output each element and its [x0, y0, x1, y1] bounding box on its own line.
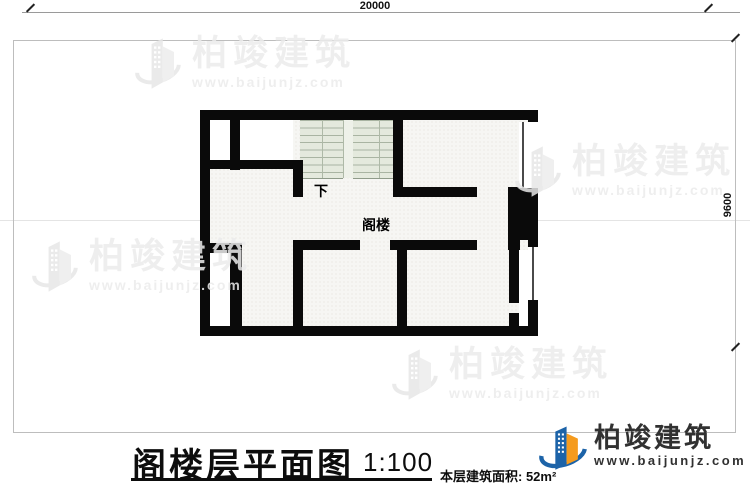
dimension-line-top — [22, 12, 740, 13]
floor-plan: 下阁楼 — [200, 110, 538, 336]
wall — [397, 240, 407, 336]
title-underline — [131, 478, 432, 481]
dimension-top-value: 20000 — [0, 0, 750, 12]
room-area — [240, 120, 293, 160]
wall — [508, 187, 538, 240]
window-pane-line — [532, 247, 534, 300]
wall — [200, 110, 210, 336]
stair-rail-line — [322, 120, 323, 178]
wall — [293, 160, 303, 197]
logo-website: www.baijunjz.com — [594, 453, 746, 468]
logo-company-name: 柏竣建筑 — [594, 423, 746, 453]
window — [519, 122, 538, 188]
room-area — [210, 120, 230, 160]
down-label: 下 — [314, 181, 328, 201]
logo-building-icon — [538, 423, 590, 475]
room-area — [519, 250, 528, 326]
attic-label: 阁楼 — [362, 215, 390, 235]
wall — [230, 243, 242, 336]
wall — [509, 240, 519, 303]
wall — [293, 240, 303, 336]
floorplan-page: { "dimensions": { "top": "20000", "right… — [0, 0, 750, 492]
window — [528, 247, 538, 300]
stair-flight-right — [353, 120, 393, 179]
wall — [200, 160, 303, 169]
wall — [393, 110, 403, 197]
wall — [200, 326, 538, 336]
wall — [393, 187, 477, 197]
company-logo: 柏竣建筑 www.baijunjz.com — [538, 423, 746, 475]
window-pane-line — [522, 122, 524, 188]
wall — [509, 313, 519, 326]
stair-rail-line — [379, 120, 380, 178]
drawing-scale: 1:100 — [363, 447, 433, 478]
staircase — [300, 120, 393, 178]
wall — [200, 110, 538, 120]
room-area — [210, 253, 230, 326]
wall — [293, 240, 360, 250]
dimension-right-value: 9600 — [722, 190, 750, 220]
